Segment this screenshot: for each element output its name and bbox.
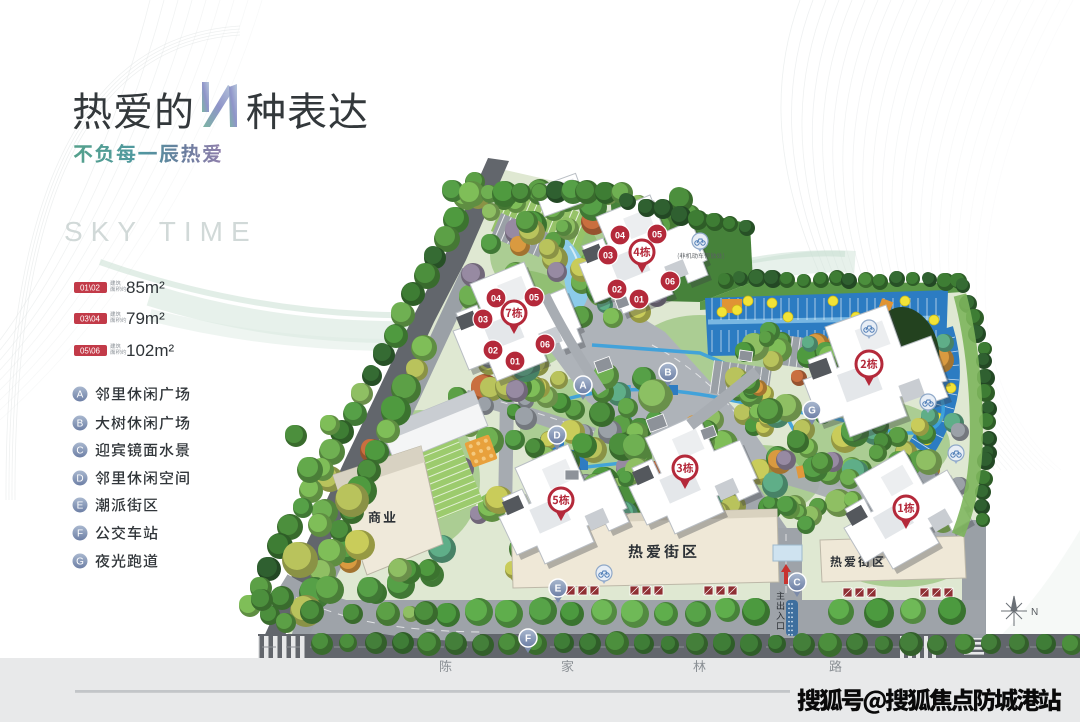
svg-text:A: A — [579, 381, 586, 392]
svg-text:03: 03 — [603, 251, 613, 261]
svg-text:D: D — [553, 431, 560, 442]
svg-text:05: 05 — [652, 230, 662, 240]
svg-text:F: F — [525, 634, 531, 645]
svg-text:06: 06 — [540, 340, 550, 350]
svg-text:N: N — [1031, 607, 1038, 618]
svg-text:C: C — [793, 578, 800, 589]
svg-text:A: A — [77, 390, 84, 401]
svg-text:03: 03 — [478, 315, 488, 325]
svg-text:02: 02 — [612, 285, 622, 295]
svg-text:85m²: 85m² — [126, 278, 165, 297]
svg-text:03\04: 03\04 — [80, 315, 101, 324]
svg-text:02: 02 — [488, 346, 498, 356]
svg-text:B: B — [664, 368, 671, 379]
svg-text:E: E — [77, 501, 84, 512]
svg-text:79m²: 79m² — [126, 309, 165, 328]
svg-text:B: B — [77, 419, 84, 430]
svg-text:G: G — [808, 406, 816, 417]
svg-text:F: F — [77, 529, 83, 540]
svg-text:05\06: 05\06 — [80, 347, 101, 356]
svg-text:01\02: 01\02 — [80, 284, 101, 293]
svg-text:G: G — [76, 557, 84, 568]
svg-text:01: 01 — [634, 295, 644, 305]
svg-text:D: D — [76, 474, 83, 485]
svg-text:SKY TIME: SKY TIME — [64, 216, 258, 247]
svg-text:102m²: 102m² — [126, 341, 175, 360]
svg-text:C: C — [76, 446, 83, 457]
svg-text:01: 01 — [510, 357, 520, 367]
svg-text:05: 05 — [529, 293, 539, 303]
svg-text:04: 04 — [491, 294, 501, 304]
svg-text:E: E — [555, 584, 562, 595]
svg-text:04: 04 — [615, 231, 625, 241]
svg-text:06: 06 — [665, 277, 675, 287]
